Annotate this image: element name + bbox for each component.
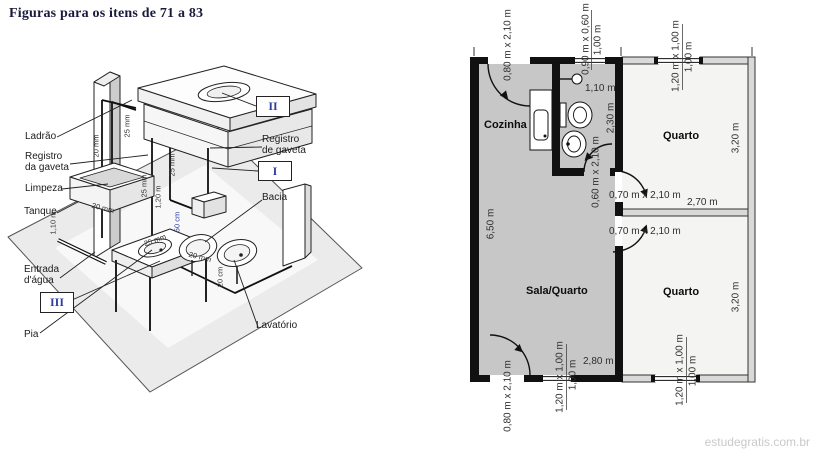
label-registro-da-gaveta: Registro da gaveta xyxy=(25,151,69,173)
label-limpeza: Limpeza xyxy=(25,183,63,194)
dim-window-bathroom: 0,90 m x 0,60 m xyxy=(581,3,592,75)
figure-page: Figuras para os itens de 71 a 83 xyxy=(0,0,813,453)
pipe-label-inlet-height: 1,10 m xyxy=(49,212,58,235)
label-entrada-dagua: Entrada d'água xyxy=(24,264,59,286)
pipe-label-bacia-feed: 25 mm xyxy=(168,154,177,177)
numeral-box-i: I xyxy=(258,161,292,181)
toilet-tank xyxy=(560,103,566,127)
label-ladrao: Ladrão xyxy=(25,131,56,142)
dim-hall-width: 2,70 m xyxy=(687,197,718,208)
watermark: estudegratis.com.br xyxy=(705,435,810,449)
dim-window-sala: 1,20 m x 1,00 m xyxy=(555,341,566,413)
pipe-label-bacia-height: 50 cm xyxy=(173,212,182,232)
dim-sill-sala: 1,00 m xyxy=(568,360,579,391)
dim-sala-width: 2,80 m xyxy=(583,356,614,367)
pipe-label-wall-riser: 20 mm xyxy=(92,135,101,158)
shower-head xyxy=(572,74,582,84)
partition-slab xyxy=(283,184,311,266)
numeral-box-ii: II xyxy=(256,96,290,117)
room-label-sala-quarto: Sala/Quarto xyxy=(526,285,588,297)
dim-door-quarto-bottom: 0,70 m x 2,10 m xyxy=(609,226,681,237)
dim-sill-quarto-bottom: 1,00 m xyxy=(688,356,699,387)
dim-door-bottom: 0,80 m x 2,10 m xyxy=(503,360,514,432)
dim-quarto-bottom-depth: 3,20 m xyxy=(731,282,742,313)
room-label-quarto-top: Quarto xyxy=(663,130,699,142)
isometric-plumbing-diagram xyxy=(8,66,362,392)
pipe-label-riser-length: 1,20 m xyxy=(154,186,163,209)
dim-door-quarto-top: 0,70 m x 2,10 m xyxy=(609,190,681,201)
dim-quarto-top-depth: 3,20 m xyxy=(731,123,742,154)
dim-left-wall-length: 6,50 m xyxy=(486,209,497,240)
dim-sill-bathroom: 1,00 m xyxy=(593,25,604,56)
dim-bathroom-depth: 2,30 m xyxy=(606,103,617,134)
pipe-label-riser: 25 mm xyxy=(140,175,149,198)
dimension-ticks xyxy=(474,47,752,56)
pipe-label-overflow: 25 mm xyxy=(123,115,132,138)
numeral-box-iii: III xyxy=(40,292,74,313)
label-bacia: Bacia xyxy=(262,192,287,203)
dim-bathroom-width: 1,10 m xyxy=(585,83,616,94)
dim-window-quarto-top: 1,20 m x 1,00 m xyxy=(671,20,682,92)
pipe-label-lavatorio-height: 20 cm xyxy=(216,267,225,287)
label-pia: Pia xyxy=(24,329,38,340)
room-label-cozinha: Cozinha xyxy=(484,119,527,131)
dim-sill-quarto-top: 1,00 m xyxy=(684,42,695,73)
dim-window-quarto-bottom: 1,20 m x 1,00 m xyxy=(675,334,686,406)
floor-bedrooms xyxy=(622,64,748,375)
dim-door-bathroom: 0,60 m x 2,10 m xyxy=(591,136,602,208)
dim-door-top: 0,80 m x 2,10 m xyxy=(503,9,514,81)
label-registro-de-gaveta: Registro de gaveta xyxy=(262,134,306,156)
room-label-quarto-bottom: Quarto xyxy=(663,286,699,298)
label-lavatorio: Lavatório xyxy=(256,320,297,331)
